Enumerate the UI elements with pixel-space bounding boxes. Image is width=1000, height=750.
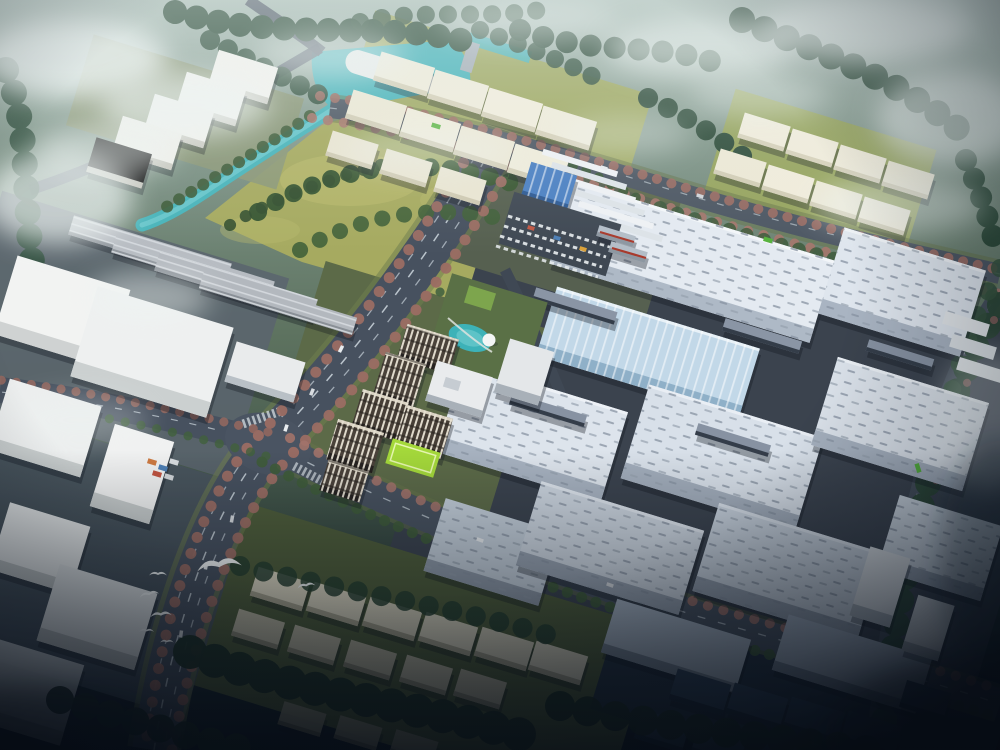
aerial-render-canvas [0, 0, 1000, 750]
vignette-overlay [0, 0, 1000, 750]
industrial-park-aerial-render [0, 0, 1000, 750]
